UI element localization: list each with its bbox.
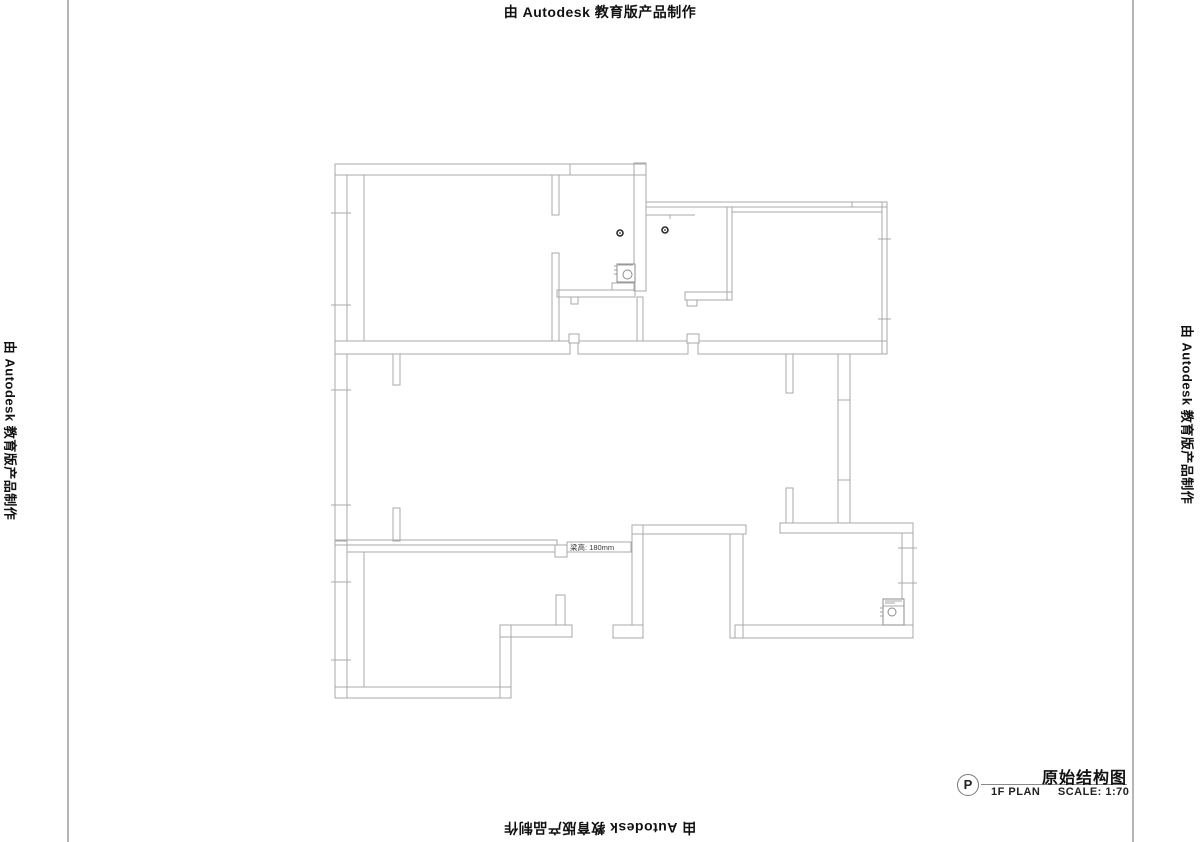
door-threshold-tab: [569, 334, 579, 343]
wall-segment: [393, 508, 400, 541]
wall-segment: [698, 341, 887, 354]
wall-segment: [727, 207, 732, 300]
wall-segment: [634, 163, 646, 291]
wall-segment: [632, 525, 746, 534]
wall-segment: [637, 297, 643, 341]
wall-segment: [780, 523, 913, 533]
wall-segment: [632, 525, 643, 625]
wall-segment: [578, 341, 688, 354]
wall-segment: [556, 595, 565, 625]
wall-segment: [335, 687, 511, 698]
beam-height-label: 梁高: 180mm: [570, 542, 614, 552]
wall-segment: [838, 354, 850, 523]
wall-segment: [735, 625, 913, 638]
wall-segment: [335, 541, 347, 698]
wall-segment: [335, 164, 646, 175]
floor-plan-svg: 梁高: 180mm: [0, 0, 1200, 842]
door-threshold-tab: [571, 297, 578, 304]
pipe-dot-center: [664, 229, 666, 231]
wall-segment: [393, 354, 400, 385]
drawing-title: 原始结构图: [1000, 764, 1127, 788]
plan-label: 1F PLAN: [991, 786, 1040, 798]
wall-segment: [552, 175, 559, 215]
plan-marker-circle: P: [957, 774, 979, 796]
scale-label: SCALE: 1:70: [1058, 786, 1130, 798]
door-threshold-tab: [687, 300, 697, 306]
plan-scale-row: 1F PLAN SCALE: 1:70: [991, 786, 1141, 798]
wall-segment: [786, 488, 793, 523]
wall-segment: [557, 290, 635, 297]
wall-segment: [335, 354, 347, 541]
wall-segment: [882, 202, 887, 354]
door-threshold-tab: [687, 334, 699, 343]
wall-segment: [646, 202, 887, 207]
wall-segment: [613, 625, 643, 638]
wall-segment: [685, 292, 732, 300]
wall-segment: [335, 175, 347, 341]
wall-segment: [335, 540, 557, 545]
autocad-plot-sheet: { "banner": { "text": "由 Autodesk 教育版产品制…: [0, 0, 1200, 842]
wall-segment: [335, 341, 570, 354]
bathroom-fixture-base: [612, 283, 635, 290]
wall-segment: [786, 354, 793, 393]
door-threshold-tab: [555, 545, 567, 557]
wall-segment: [730, 534, 743, 638]
bathroom-fixture-box: [617, 264, 635, 282]
pipe-dot-center: [619, 232, 621, 234]
